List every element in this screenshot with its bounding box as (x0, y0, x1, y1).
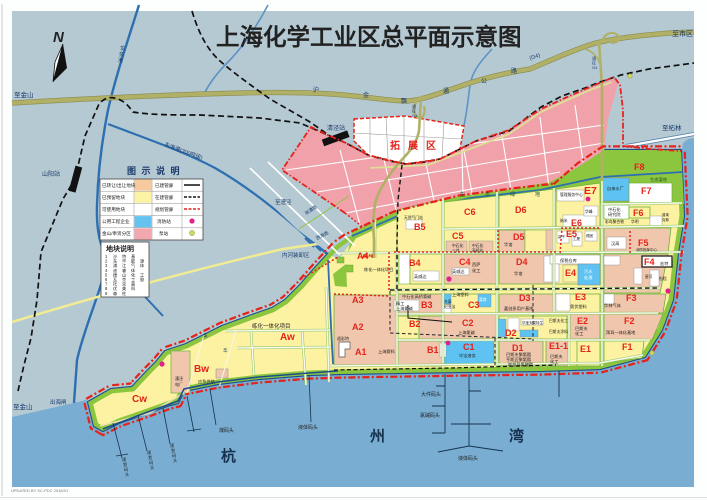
svg-text:煤码头: 煤码头 (219, 427, 234, 434)
svg-text:华: 华 (223, 347, 228, 354)
svg-text:G4: G4 (592, 65, 598, 70)
svg-text:龙: 龙 (120, 45, 125, 52)
svg-text:A3: A3 (352, 295, 364, 305)
svg-text:在建管廊: 在建管廊 (155, 194, 174, 201)
svg-text:消防站: 消防站 (157, 218, 171, 225)
svg-text:地块说明: 地块说明 (106, 244, 134, 253)
svg-text:Cw: Cw (132, 394, 147, 405)
svg-text:泵站: 泵站 (159, 230, 169, 237)
svg-text:消防指挥中心: 消防指挥中心 (636, 247, 657, 252)
svg-text:氯商: 氯商 (479, 297, 487, 302)
svg-text:A4: A4 (357, 251, 369, 261)
svg-text:华林气体: 华林气体 (604, 302, 622, 309)
svg-text:F5: F5 (638, 238, 649, 248)
svg-text:奥伏塑料: 奥伏塑料 (570, 303, 588, 310)
svg-text:通: 通 (443, 87, 449, 95)
svg-text:E6: E6 (571, 218, 582, 228)
svg-text:A1: A1 (355, 347, 367, 357)
svg-text:F2: F2 (624, 316, 635, 326)
svg-text:至金山: 至金山 (13, 402, 33, 411)
svg-text:E1: E1 (580, 344, 591, 354)
svg-text:公用工程企业: 公用工程企业 (102, 218, 130, 225)
svg-text:Bw: Bw (194, 364, 209, 375)
svg-text:毕宝液务: 毕宝液务 (459, 352, 477, 359)
svg-text:三井: 三井 (452, 248, 460, 253)
svg-text:中石化: 中石化 (472, 243, 484, 248)
svg-text:头: 头 (150, 464, 154, 471)
svg-text:污水: 污水 (584, 268, 593, 275)
svg-text:赢子: 赢子 (558, 234, 566, 239)
svg-text:遥彩特: 遥彩特 (337, 335, 349, 341)
svg-text:德固: 德固 (586, 233, 594, 238)
svg-text:化工: 化工 (472, 267, 480, 274)
svg-text:上海塑料: 上海塑料 (452, 291, 470, 298)
svg-text:美: 美 (203, 332, 208, 339)
svg-text:F6: F6 (633, 208, 644, 218)
svg-text:中石化: 中石化 (452, 243, 464, 248)
svg-text:自来水厂: 自来水厂 (607, 185, 624, 192)
svg-text:宏特: 宏特 (660, 260, 668, 267)
svg-text:A2: A2 (352, 322, 364, 332)
svg-text:管理服务中心: 管理服务中心 (560, 192, 583, 197)
svg-text:B4: B4 (409, 258, 421, 268)
svg-text:头: 头 (173, 457, 177, 464)
svg-text:E1-1: E1-1 (549, 341, 568, 351)
svg-text:纪亚法: 纪亚法 (444, 304, 456, 309)
svg-text:C4: C4 (459, 257, 471, 267)
svg-text:拓展区: 拓展区 (390, 139, 444, 152)
svg-text:上海氯碱: 上海氯碱 (396, 305, 414, 312)
svg-text:金: 金 (363, 91, 369, 99)
svg-text:星可: 星可 (645, 274, 653, 279)
svg-text:州: 州 (369, 428, 385, 445)
svg-text:B2: B2 (409, 319, 421, 329)
svg-text:C3: C3 (468, 300, 480, 310)
svg-text:泉: 泉 (119, 51, 124, 58)
svg-text:内河装卸区: 内河装卸区 (282, 251, 310, 259)
svg-text:F3: F3 (626, 293, 637, 303)
svg-text:电厂: 电厂 (175, 381, 183, 387)
svg-text:处理: 处理 (584, 274, 593, 281)
svg-text:英威达: 英威达 (452, 268, 465, 275)
svg-text:G4: G4 (412, 113, 418, 118)
svg-text:B1: B1 (427, 345, 439, 355)
svg-text:华明: 华明 (631, 219, 639, 224)
svg-text:胶: 胶 (140, 276, 144, 283)
svg-text:已建管廊: 已建管廊 (155, 182, 174, 189)
svg-text:工晟: 工晟 (573, 236, 581, 241)
svg-text:沪: 沪 (313, 86, 319, 94)
svg-text:化工: 化工 (550, 358, 558, 365)
svg-text:汉高: 汉高 (611, 240, 619, 247)
svg-text:D6: D6 (515, 205, 527, 215)
svg-text:F4: F4 (644, 257, 655, 267)
svg-text:生态绿地: 生态绿地 (460, 191, 560, 198)
svg-text:山阳站: 山阳站 (42, 170, 60, 178)
svg-text:高桥化: 高桥化 (472, 248, 484, 253)
svg-text:C2: C2 (462, 318, 474, 328)
svg-text:纳米: 纳米 (560, 218, 568, 223)
svg-text:至金山: 至金山 (14, 90, 34, 99)
svg-text:B5: B5 (414, 222, 426, 232)
svg-text:至柘林: 至柘林 (662, 123, 682, 132)
svg-text:图 示 说 明: 图 示 说 明 (127, 165, 181, 176)
svg-text:漕泾: 漕泾 (175, 375, 183, 381)
svg-text:天然气门站: 天然气门站 (404, 215, 423, 220)
svg-text:飘: 飘 (401, 98, 407, 105)
svg-text:C1: C1 (463, 342, 475, 352)
svg-text:金山/奉贤分区: 金山/奉贤分区 (102, 230, 131, 237)
svg-text:F1: F1 (622, 342, 633, 352)
svg-text:至市区: 至市区 (672, 29, 693, 38)
svg-text:大件码头: 大件码头 (421, 391, 441, 398)
svg-text:华宝天泉特生: 华宝天泉特生 (522, 320, 543, 325)
svg-text:上海氯碱: 上海氯碱 (458, 329, 476, 336)
svg-text:清泾站: 清泾站 (327, 124, 345, 132)
svg-text:湾: 湾 (509, 427, 524, 445)
svg-text:生态湿地: 生态湿地 (650, 176, 668, 183)
svg-text:港: 港 (118, 57, 123, 64)
svg-text:公: 公 (481, 78, 487, 85)
svg-text:D5: D5 (513, 232, 525, 242)
svg-text:华峰: 华峰 (585, 209, 593, 214)
svg-text:东泰: 东泰 (444, 299, 452, 304)
svg-text:中石化高桥氯碱: 中石化高桥氯碱 (402, 293, 432, 300)
svg-text:头: 头 (125, 471, 129, 478)
svg-text:C6: C6 (464, 207, 476, 217)
svg-text:西萨: 西萨 (472, 261, 480, 268)
svg-text:UPDATED BY SC-PDC 2016/01: UPDATED BY SC-PDC 2016/01 (11, 488, 69, 493)
svg-text:E2: E2 (577, 316, 588, 326)
svg-text:B3: B3 (421, 300, 433, 310)
svg-text:D2: D2 (505, 328, 517, 338)
svg-text:氯碱码头: 氯碱码头 (420, 412, 440, 419)
svg-text:可使用地块: 可使用地块 (102, 206, 125, 213)
svg-text:E7: E7 (584, 185, 597, 197)
svg-text:练化一体化项目: 练化一体化项目 (252, 322, 291, 330)
svg-text:嘉创多用户基地: 嘉创多用户基地 (504, 305, 534, 312)
svg-text:上海化学工业区总平面示意图: 上海化学工业区总平面示意图 (216, 23, 522, 50)
svg-text:液体码头: 液体码头 (298, 424, 318, 431)
svg-text:杭: 杭 (221, 447, 236, 465)
svg-text:N: N (53, 29, 65, 46)
svg-text:出海闸: 出海闸 (50, 398, 67, 406)
svg-text:至漕泾: 至漕泾 (275, 198, 292, 206)
svg-text:E3: E3 (575, 292, 586, 302)
svg-text:研究院: 研究院 (608, 211, 621, 218)
svg-text:D3: D3 (519, 293, 531, 303)
svg-text:华谊: 华谊 (504, 241, 512, 248)
svg-text:应急供热: 应急供热 (198, 378, 216, 385)
svg-text:联恒异氰酸酯: 联恒异氰酸酯 (508, 361, 533, 368)
svg-text:C5: C5 (452, 231, 464, 241)
svg-text:F7: F7 (641, 186, 652, 196)
svg-text:路: 路 (511, 67, 517, 75)
svg-text:拜耳一体化基地: 拜耳一体化基地 (606, 329, 636, 336)
svg-text:Aw: Aw (280, 332, 295, 343)
svg-text:液体码头: 液体码头 (458, 455, 478, 462)
svg-text:规划管廊: 规划管廊 (155, 206, 174, 213)
svg-text:巴斯夫化工: 巴斯夫化工 (549, 318, 568, 323)
svg-text:彩岛聚合物: 彩岛聚合物 (605, 219, 624, 224)
svg-text:E4: E4 (565, 268, 576, 278)
svg-text:彤程: 彤程 (659, 276, 667, 281)
svg-text:已转让/出让地块: 已转让/出让地块 (102, 182, 136, 189)
svg-text:保税仓库: 保税仓库 (560, 257, 577, 264)
svg-text:华谊: 华谊 (514, 270, 522, 277)
svg-text:化工: 化工 (575, 330, 583, 337)
svg-text:英威达: 英威达 (414, 273, 427, 280)
svg-text:普莱: 普莱 (662, 212, 670, 217)
svg-text:巴斯夫涂料: 巴斯夫涂料 (549, 329, 568, 334)
svg-text:D4: D4 (516, 257, 528, 267)
svg-text:克斯: 克斯 (662, 217, 670, 222)
svg-text:F8: F8 (634, 162, 645, 172)
svg-text:已预留地块: 已预留地块 (102, 194, 125, 201)
svg-text:上海赛科: 上海赛科 (378, 348, 396, 355)
